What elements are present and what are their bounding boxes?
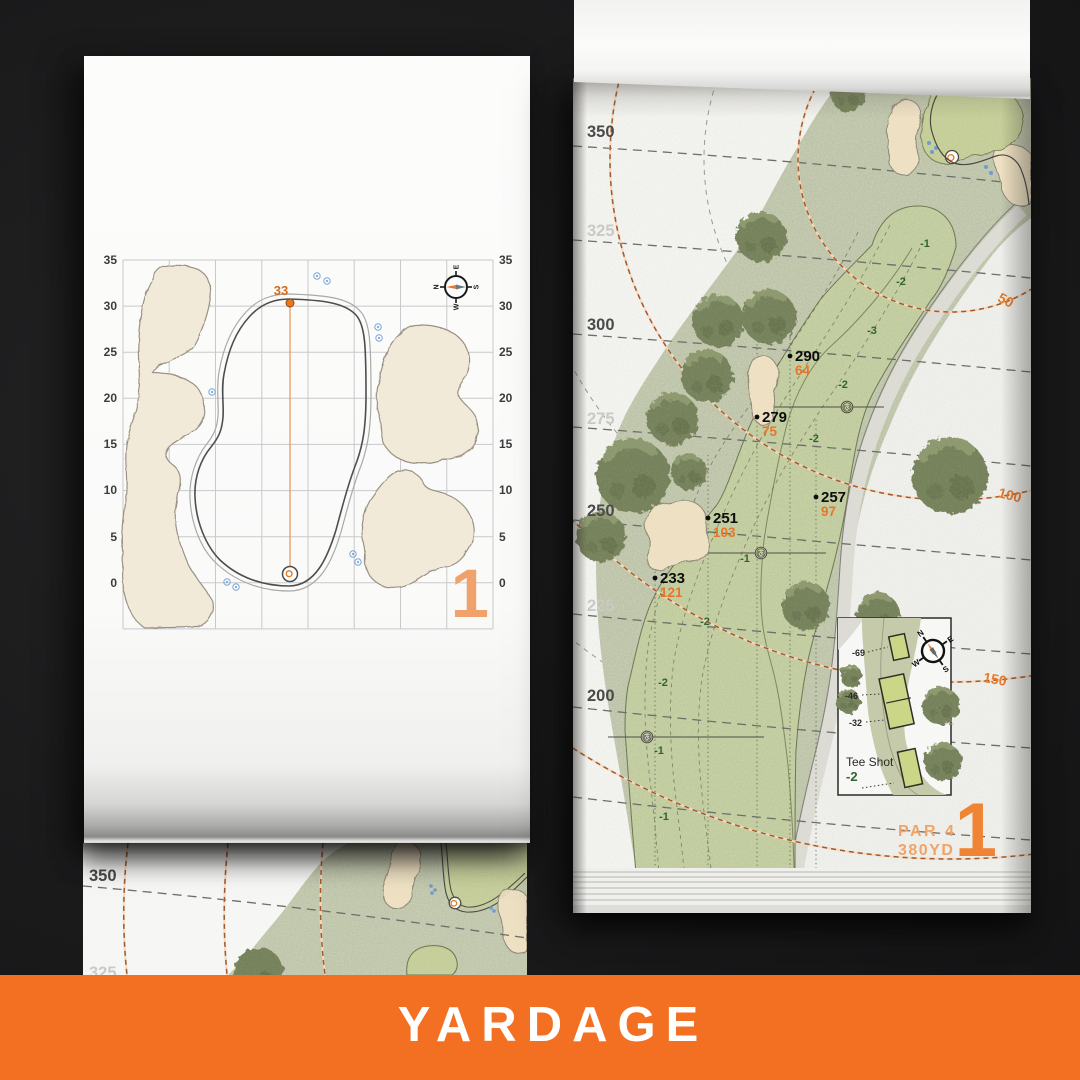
svg-text:-2: -2 — [896, 276, 906, 288]
svg-text:64: 64 — [795, 363, 811, 378]
svg-text:E: E — [454, 264, 461, 269]
svg-text:-46: -46 — [845, 691, 858, 701]
svg-text:-1: -1 — [659, 811, 669, 823]
svg-text:30: 30 — [499, 299, 513, 313]
svg-text:63: 63 — [843, 405, 851, 412]
svg-text:0: 0 — [499, 576, 506, 590]
svg-text:350: 350 — [587, 123, 615, 141]
svg-text:PAR 4: PAR 4 — [898, 823, 956, 840]
svg-text:25: 25 — [499, 345, 513, 359]
svg-text:380YD: 380YD — [898, 842, 954, 859]
svg-text:1: 1 — [451, 555, 489, 632]
svg-text:300: 300 — [587, 316, 615, 334]
svg-text:10: 10 — [104, 483, 118, 497]
svg-text:325: 325 — [89, 964, 117, 975]
svg-text:33: 33 — [274, 283, 288, 298]
svg-text:N: N — [434, 284, 441, 289]
svg-text:63: 63 — [757, 551, 765, 558]
svg-text:5: 5 — [110, 530, 117, 544]
svg-text:1: 1 — [955, 788, 997, 873]
svg-text:-69: -69 — [852, 648, 865, 658]
svg-text:20: 20 — [499, 391, 513, 405]
svg-text:225: 225 — [587, 597, 615, 615]
svg-text:W: W — [454, 303, 461, 310]
svg-text:20: 20 — [104, 391, 118, 405]
svg-text:35: 35 — [104, 253, 118, 267]
svg-text:35: 35 — [499, 253, 513, 267]
svg-text:Tee Shot: Tee Shot — [846, 755, 894, 769]
svg-text:200: 200 — [587, 687, 615, 705]
svg-text:10: 10 — [499, 483, 513, 497]
svg-text:25: 25 — [104, 345, 118, 359]
svg-text:-2: -2 — [658, 677, 668, 689]
svg-text:0: 0 — [110, 576, 117, 590]
svg-text:325: 325 — [587, 222, 615, 240]
svg-text:-2: -2 — [838, 379, 848, 391]
svg-text:250: 250 — [587, 502, 615, 520]
svg-text:-1: -1 — [920, 238, 930, 250]
svg-text:63: 63 — [643, 735, 651, 742]
svg-text:S: S — [474, 284, 481, 289]
svg-text:275: 275 — [587, 410, 615, 428]
svg-text:15: 15 — [499, 437, 513, 451]
svg-text:75: 75 — [762, 424, 778, 439]
svg-text:121: 121 — [660, 585, 683, 600]
svg-text:-32: -32 — [849, 718, 862, 728]
svg-text:5: 5 — [499, 530, 506, 544]
svg-text:-3: -3 — [867, 325, 877, 337]
svg-text:-2: -2 — [700, 616, 710, 628]
svg-text:-1: -1 — [654, 745, 664, 757]
svg-text:-2: -2 — [809, 433, 819, 445]
svg-text:103: 103 — [713, 525, 736, 540]
svg-text:350: 350 — [89, 867, 117, 885]
svg-text:30: 30 — [104, 299, 118, 313]
svg-text:97: 97 — [821, 504, 836, 519]
svg-text:15: 15 — [104, 437, 118, 451]
svg-text:-2: -2 — [846, 769, 858, 784]
svg-text:-1: -1 — [740, 553, 750, 565]
